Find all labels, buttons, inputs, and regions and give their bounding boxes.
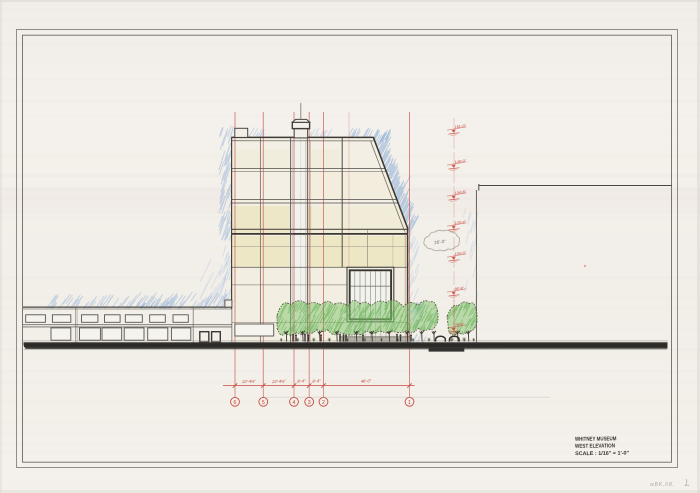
- svg-text:8'-4": 8'-4": [312, 378, 321, 383]
- svg-text:SCALE : 1/16" = 1'-0": SCALE : 1/16" = 1'-0": [575, 451, 629, 458]
- svg-text:4: 4: [293, 400, 296, 406]
- svg-text:22'-4⅞": 22'-4⅞": [241, 378, 256, 384]
- svg-text:22'-4⅞": 22'-4⅞": [271, 378, 286, 384]
- svg-text:1: 1: [408, 400, 411, 406]
- svg-text:wBK,08,: wBK,08,: [650, 482, 674, 488]
- svg-text:2: 2: [322, 400, 325, 406]
- svg-text:WEST ELEVATION: WEST ELEVATION: [575, 443, 615, 449]
- svg-text:8'-4": 8'-4": [297, 378, 306, 383]
- svg-text:3: 3: [308, 400, 311, 406]
- svg-text:6: 6: [234, 400, 237, 406]
- svg-text:5: 5: [262, 400, 265, 406]
- svg-text:WHITNEY MUSEUM: WHITNEY MUSEUM: [575, 436, 617, 442]
- svg-text:48'-0": 48'-0": [361, 378, 372, 383]
